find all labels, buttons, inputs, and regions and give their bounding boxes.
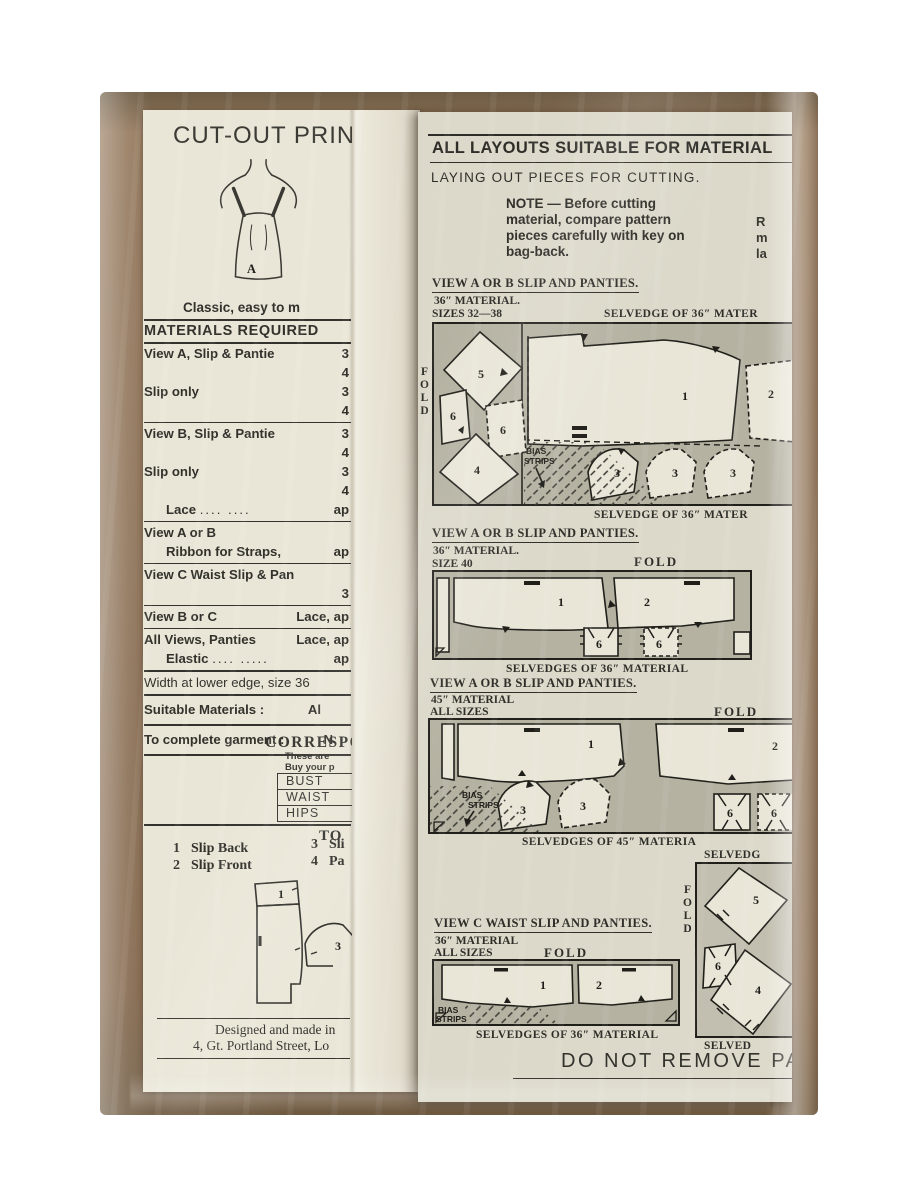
photo-of-sewing-pattern-package: CUT-OUT PRINTED A — [0, 0, 900, 1200]
plastic-edge-left — [100, 92, 152, 1115]
plastic-edge-right — [766, 92, 818, 1115]
plastic-sheen-overlay — [100, 92, 818, 1115]
plastic-crinkle-bottom — [130, 1072, 770, 1112]
